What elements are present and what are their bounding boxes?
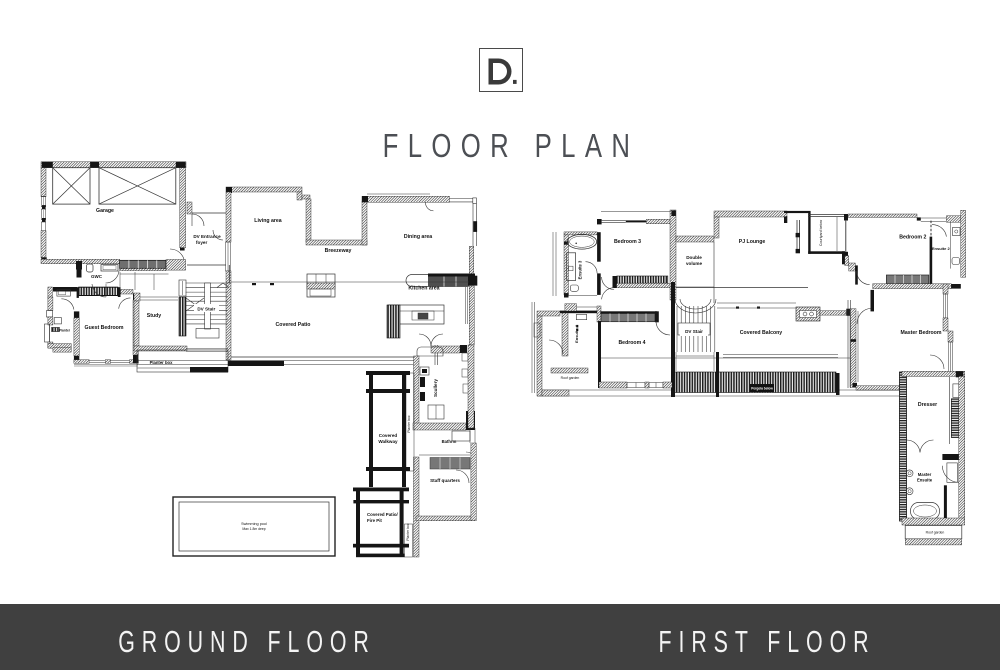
svg-text:DV Stair: DV Stair bbox=[197, 306, 215, 311]
svg-text:PJ Lounge: PJ Lounge bbox=[739, 239, 766, 245]
svg-text:Master: Master bbox=[918, 472, 932, 477]
svg-text:Roof garden: Roof garden bbox=[926, 531, 945, 535]
svg-text:volume: volume bbox=[686, 261, 703, 266]
svg-text:Courtyard below: Courtyard below bbox=[819, 220, 823, 247]
svg-text:Bedroom 4: Bedroom 4 bbox=[618, 340, 645, 346]
svg-text:Planter box: Planter box bbox=[407, 415, 411, 432]
svg-text:Bedroom 3: Bedroom 3 bbox=[614, 239, 641, 245]
svg-text:Scullery: Scullery bbox=[433, 379, 438, 397]
svg-text:Garage: Garage bbox=[96, 208, 114, 214]
svg-text:Walkway: Walkway bbox=[378, 439, 398, 444]
svg-text:Ensuite 3: Ensuite 3 bbox=[578, 260, 583, 279]
svg-text:Planter box: Planter box bbox=[406, 523, 410, 540]
svg-text:Covered: Covered bbox=[379, 433, 398, 438]
svg-text:Living area: Living area bbox=[254, 218, 282, 224]
svg-text:Ensuite 4: Ensuite 4 bbox=[574, 324, 579, 343]
svg-text:Staff quarters: Staff quarters bbox=[430, 478, 460, 483]
svg-text:Pergola below: Pergola below bbox=[751, 387, 773, 391]
svg-text:Planter: Planter bbox=[59, 329, 71, 333]
svg-text:Ensuite 2: Ensuite 2 bbox=[932, 246, 951, 251]
svg-text:Guest Bedroom: Guest Bedroom bbox=[85, 325, 124, 331]
svg-text:Ensuite: Ensuite bbox=[917, 478, 933, 483]
svg-text:Double: Double bbox=[686, 255, 702, 260]
svg-text:Fire Pit: Fire Pit bbox=[367, 518, 382, 523]
svg-text:Covered Patio: Covered Patio bbox=[276, 322, 311, 328]
svg-text:Bathrm: Bathrm bbox=[442, 439, 457, 444]
svg-text:Dresser: Dresser bbox=[918, 402, 937, 408]
svg-text:Swimming pool: Swimming pool bbox=[241, 522, 267, 526]
svg-text:Roof garden: Roof garden bbox=[561, 376, 580, 380]
svg-text:DV Entrance: DV Entrance bbox=[193, 234, 221, 239]
svg-text:Study: Study bbox=[147, 313, 162, 319]
svg-text:Max 1.8m deep: Max 1.8m deep bbox=[242, 527, 265, 531]
svg-text:Bedroom 2: Bedroom 2 bbox=[899, 235, 926, 241]
svg-text:Kitchen area: Kitchen area bbox=[408, 286, 439, 292]
svg-text:GWC: GWC bbox=[91, 274, 103, 279]
svg-text:Dining area: Dining area bbox=[404, 234, 432, 240]
svg-text:Covered Balcony: Covered Balcony bbox=[740, 330, 782, 336]
svg-text:Covered Patio/: Covered Patio/ bbox=[367, 512, 399, 517]
svg-text:DV Stair: DV Stair bbox=[685, 329, 703, 334]
svg-text:Planter box: Planter box bbox=[150, 360, 173, 365]
svg-text:Master Bedroom: Master Bedroom bbox=[901, 330, 942, 336]
svg-text:foyer: foyer bbox=[196, 240, 207, 245]
svg-text:Breezeway: Breezeway bbox=[325, 248, 352, 254]
